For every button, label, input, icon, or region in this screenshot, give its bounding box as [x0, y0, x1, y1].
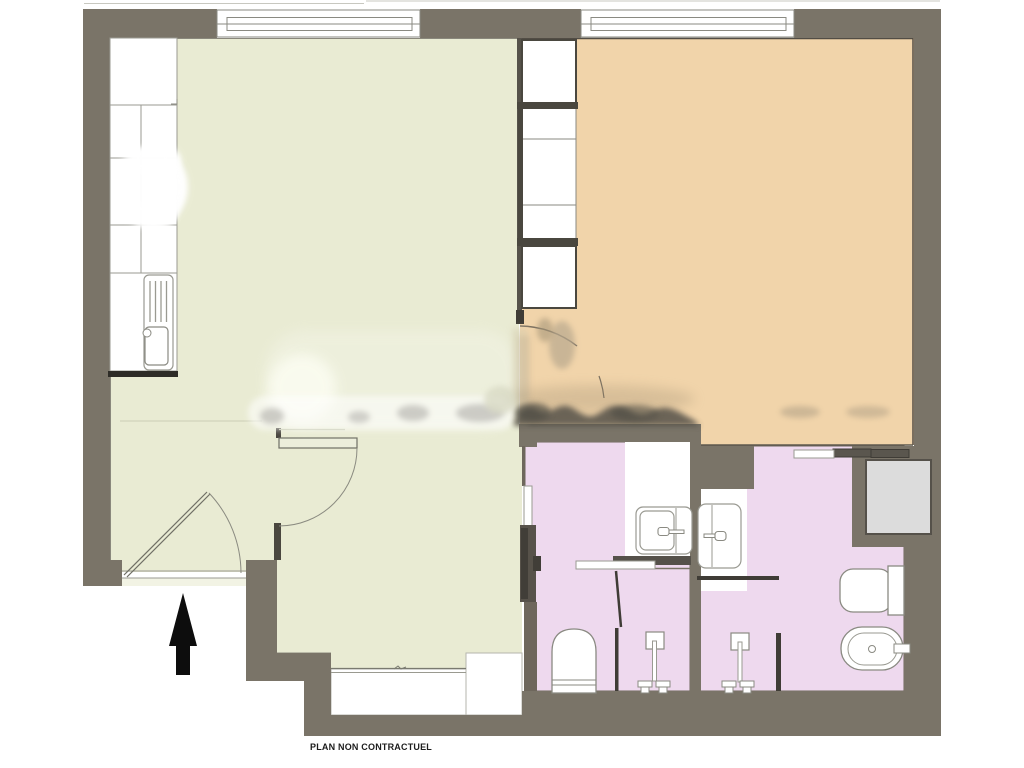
svg-text:PLAN NON CONTRACTUEL: PLAN NON CONTRACTUEL	[310, 742, 432, 752]
